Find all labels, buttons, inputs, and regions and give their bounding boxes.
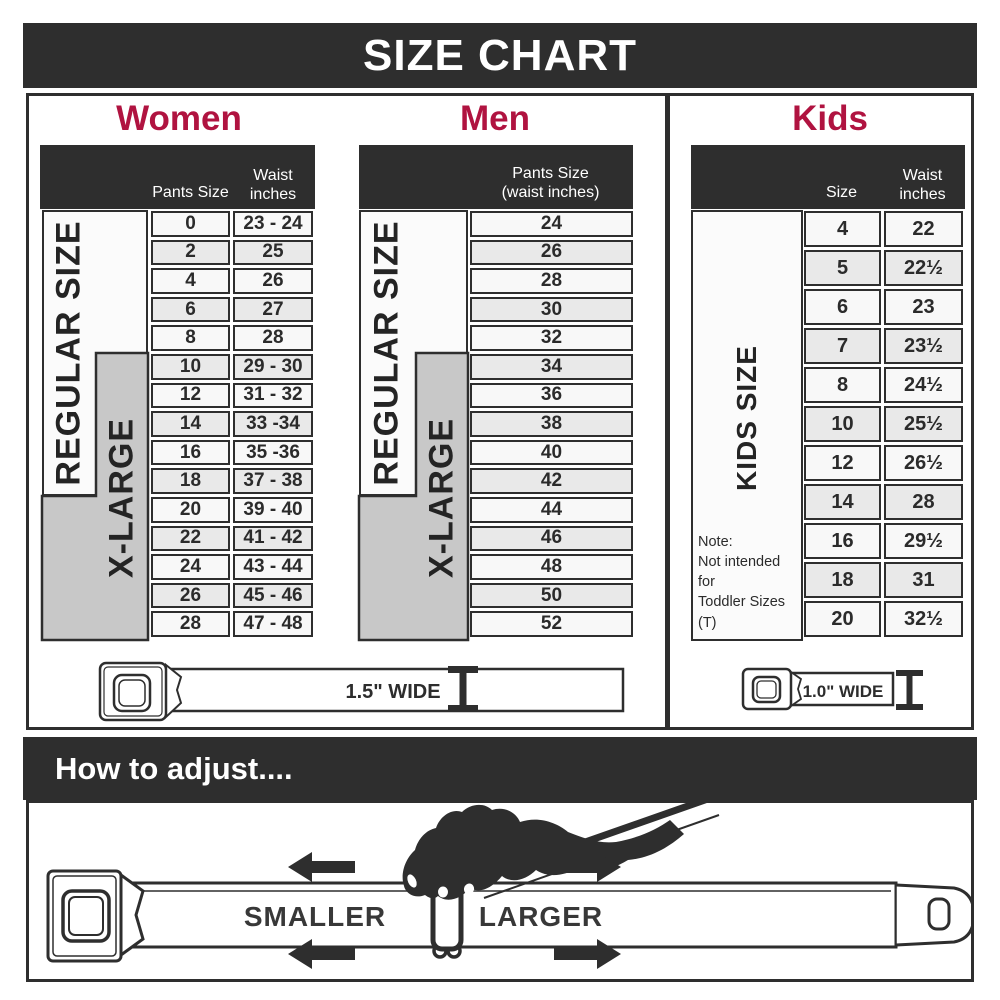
size-tables-panel: Women Men Kids Pants Size Waist inches R…	[26, 93, 974, 730]
men-xlarge-label: X-LARGE	[423, 418, 462, 578]
women-waist-cell: 33 -34	[233, 411, 313, 437]
women-size-cell: 8	[151, 325, 230, 351]
kids-size-cell: 8	[804, 367, 881, 403]
men-size-cell: 40	[470, 440, 633, 466]
kids-size-cell: 18	[804, 562, 881, 598]
women-waist-cell: 47 - 48	[233, 611, 313, 637]
women-table-header: Pants Size Waist inches	[40, 145, 315, 209]
women-waist-cell: 39 - 40	[233, 497, 313, 523]
how-to-adjust-bar: How to adjust....	[23, 737, 977, 800]
women-size-cell: 22	[151, 526, 230, 552]
kids-size-label: KIDS SIZE	[731, 345, 763, 491]
kids-size-cell: 4	[804, 211, 881, 247]
kids-waist-cell: 31	[884, 562, 963, 598]
men-col-header: Pants Size (waist inches)	[468, 165, 633, 203]
men-size-cell: 26	[470, 240, 633, 266]
men-size-cell: 50	[470, 583, 633, 609]
kids-waist-cell: 23½	[884, 328, 963, 364]
women-xlarge-label: X-LARGE	[103, 418, 142, 578]
women-waist-cell: 26	[233, 268, 313, 294]
kids-waist-cell: 23	[884, 289, 963, 325]
women-waist-cell: 41 - 42	[233, 526, 313, 552]
kids-waist-cell: 29½	[884, 523, 963, 559]
size-chart-title-bar: SIZE CHART	[23, 23, 977, 88]
belt-tip-hole	[929, 899, 949, 929]
kids-waist-cell: 22½	[884, 250, 963, 286]
kids-note: Note: Not intended for Toddler Sizes (T)	[698, 532, 801, 633]
kids-size-cell: 16	[804, 523, 881, 559]
women-waist-cell: 35 -36	[233, 440, 313, 466]
women-waist-cell: 31 - 32	[233, 383, 313, 409]
women-regular-size-label: REGULAR SIZE	[50, 220, 89, 485]
panel-divider	[665, 96, 670, 727]
women-waist-cell: 43 - 44	[233, 554, 313, 580]
men-size-cell: 32	[470, 325, 633, 351]
smaller-label: SMALLER	[244, 901, 386, 932]
women-waist-cell: 27	[233, 297, 313, 323]
fingernail-icon	[438, 887, 448, 898]
women-size-cell: 14	[151, 411, 230, 437]
how-to-adjust-heading: How to adjust....	[55, 737, 977, 800]
kids-waist-cell: 32½	[884, 601, 963, 637]
kids-belt-illustration: 1.0" WIDE	[733, 658, 933, 718]
women-waist-cell: 29 - 30	[233, 354, 313, 380]
women-size-cell: 2	[151, 240, 230, 266]
women-waist-cell: 37 - 38	[233, 468, 313, 494]
women-size-cell: 10	[151, 354, 230, 380]
kids-waist-cell: 24½	[884, 367, 963, 403]
men-size-cell: 36	[470, 383, 633, 409]
kids-waist-cell: 28	[884, 484, 963, 520]
women-size-cell: 12	[151, 383, 230, 409]
men-size-cell: 46	[470, 526, 633, 552]
kids-col1-header: Size	[803, 184, 880, 203]
men-size-cell: 34	[470, 354, 633, 380]
men-size-cell: 38	[470, 411, 633, 437]
men-table-rows: 242628303234363840424446485052	[470, 211, 633, 637]
larger-label: LARGER	[479, 901, 603, 932]
women-size-cell: 0	[151, 211, 230, 237]
adjust-belt-illustration: SMALLER LARGER	[29, 803, 971, 979]
men-size-cell: 48	[470, 554, 633, 580]
men-table-header: Pants Size (waist inches)	[359, 145, 633, 209]
kids-waist-cell: 25½	[884, 406, 963, 442]
women-size-cell: 28	[151, 611, 230, 637]
kids-heading: Kids	[740, 99, 920, 139]
men-size-cell: 52	[470, 611, 633, 637]
women-waist-cell: 25	[233, 240, 313, 266]
women-col2-header: Waist inches	[233, 167, 313, 205]
women-size-cell: 16	[151, 440, 230, 466]
kids-size-cell: 5	[804, 250, 881, 286]
kids-size-cell: 7	[804, 328, 881, 364]
men-size-cell: 28	[470, 268, 633, 294]
kids-size-cell: 12	[804, 445, 881, 481]
women-table-rows: 023 - 242254266278281029 - 301231 - 3214…	[151, 211, 313, 637]
women-size-cell: 26	[151, 583, 230, 609]
women-waist-cell: 28	[233, 325, 313, 351]
adult-belt-illustration: 1.5" WIDE	[93, 653, 633, 723]
men-regular-size-label: REGULAR SIZE	[368, 220, 407, 485]
kids-size-cell: 20	[804, 601, 881, 637]
women-heading: Women	[89, 99, 269, 139]
men-size-cell: 24	[470, 211, 633, 237]
kids-waist-cell: 22	[884, 211, 963, 247]
kids-size-cell: 14	[804, 484, 881, 520]
women-size-cell: 18	[151, 468, 230, 494]
kids-col2-header: Waist inches	[883, 167, 962, 205]
size-chart-infographic: SIZE CHART Women Men Kids Pants Size Wai…	[0, 0, 1000, 1000]
kids-belt-width-label: 1.0" WIDE	[803, 682, 884, 701]
adult-belt-width-label: 1.5" WIDE	[345, 681, 440, 703]
women-size-cell: 24	[151, 554, 230, 580]
adjust-illustration-panel: SMALLER LARGER	[26, 800, 974, 982]
smaller-arrow-top-icon	[288, 852, 355, 882]
women-size-cell: 6	[151, 297, 230, 323]
page-title: SIZE CHART	[23, 23, 977, 88]
women-waist-cell: 45 - 46	[233, 583, 313, 609]
men-size-cell: 44	[470, 497, 633, 523]
men-size-cell: 42	[470, 468, 633, 494]
kids-size-cell: 10	[804, 406, 881, 442]
kids-table-rows: 422522½623723½824½1025½1226½14281629½183…	[804, 211, 963, 637]
men-heading: Men	[405, 99, 585, 139]
women-waist-cell: 23 - 24	[233, 211, 313, 237]
kids-waist-cell: 26½	[884, 445, 963, 481]
men-size-cell: 30	[470, 297, 633, 323]
kids-size-cell: 6	[804, 289, 881, 325]
women-size-cell: 4	[151, 268, 230, 294]
kids-table-header: Size Waist inches	[691, 145, 965, 209]
women-size-cell: 20	[151, 497, 230, 523]
women-col1-header: Pants Size	[151, 184, 230, 203]
width-ibeam-icon	[896, 670, 923, 710]
